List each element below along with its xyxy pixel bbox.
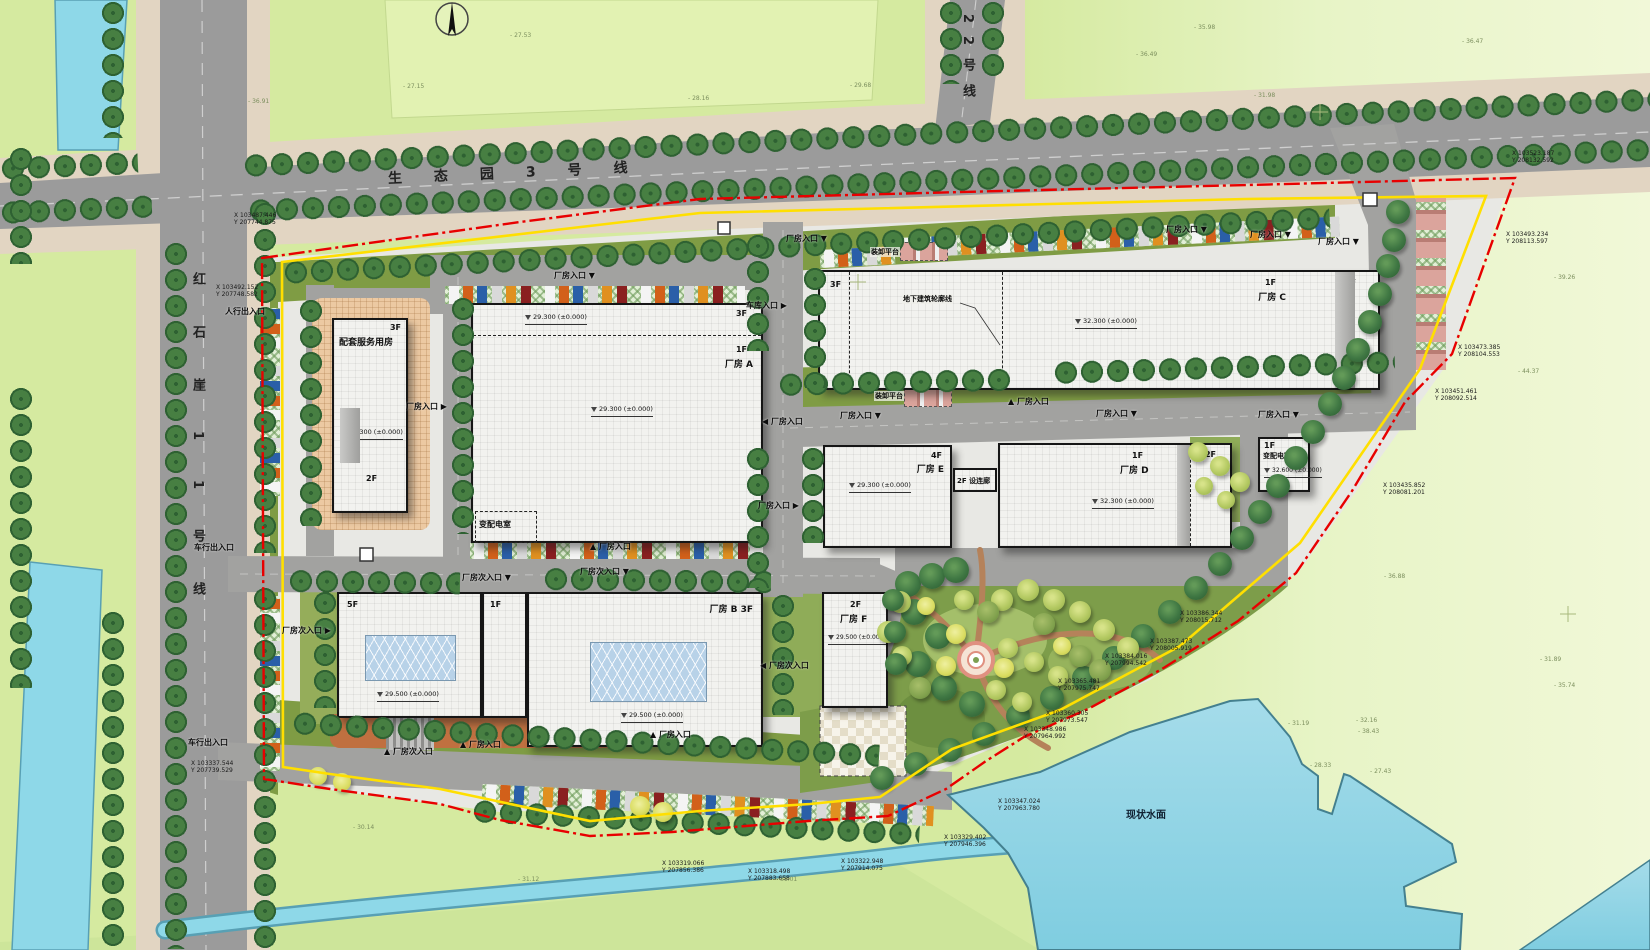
survey-coordinate: X 103493.234 Y 208113.597 — [1506, 231, 1548, 245]
entrance-label: 车库入口 ▶ — [746, 300, 787, 311]
spot-elevation: - 30.14 — [353, 824, 374, 831]
spot-elevation: - 31.19 — [1288, 720, 1309, 727]
survey-coordinate: X 103347.024 Y 207963.780 — [998, 798, 1040, 812]
entrance-label: ▲ 厂房入口 — [1008, 396, 1049, 407]
site-plan: 3F 配套服务用房 29.300 (±0.000) 2F 29.300 (±0.… — [0, 0, 1650, 950]
survey-coordinate: X 103435.852 Y 208081.201 — [1383, 482, 1425, 496]
spot-elevation: - 31.01 — [776, 876, 797, 883]
spot-elevation: - 35.74 — [1554, 682, 1575, 689]
spot-elevation: - 36.88 — [1384, 573, 1405, 580]
road-name-eco3: 生态园3号线 — [388, 156, 660, 188]
survey-coordinate: X 103473.385 Y 208104.553 — [1458, 344, 1500, 358]
survey-coordinate: X 103387.473 Y 208005.919 — [1150, 638, 1192, 652]
annotation-label: 装卸平台 — [870, 247, 900, 257]
entrance-label: 厂房入口 ▶ — [758, 500, 799, 511]
survey-coordinate: X 103487.446 Y 207744.875 — [234, 212, 276, 226]
spot-elevation: - 31.12 — [518, 876, 539, 883]
entrance-label: ▲ 厂房入口 — [650, 729, 691, 740]
entrance-label: ▲ 厂房次入口 — [384, 746, 433, 757]
entrance-label: 厂房次入口 ▼ — [462, 572, 511, 583]
road-name-hongshiya: 红石崖11号线 — [188, 272, 207, 635]
entrance-label: 厂房次入口 ▶ — [282, 625, 331, 636]
spot-elevation: - 27.43 — [1370, 768, 1391, 775]
entrance-label: 厂房入口 ▼ — [554, 270, 595, 281]
entrance-label: 厂房入口 ▼ — [1258, 409, 1299, 420]
survey-coordinate: X 103384.016 Y 207994.542 — [1105, 653, 1147, 667]
entrance-label: 车行出入口 — [188, 737, 228, 748]
entrance-label: 厂房入口 ▼ — [1166, 224, 1207, 235]
annotation-label: 装卸平台 — [874, 391, 904, 401]
spot-elevation: - 36.49 — [1136, 51, 1157, 58]
survey-coordinate: X 103360.305 Y 207973.547 — [1046, 710, 1088, 724]
survey-coordinate: X 103386.344 Y 208015.712 — [1180, 610, 1222, 624]
entrance-label: 车行出入口 — [194, 542, 234, 553]
survey-coordinate: X 103451.461 Y 208092.514 — [1435, 388, 1477, 402]
spot-elevation: - 32.16 — [1356, 717, 1377, 724]
spot-elevation: - 31.98 — [1254, 92, 1275, 99]
survey-coordinate: X 103322.948 Y 207914.075 — [841, 858, 883, 872]
entrance-label: ▲ 厂房入口 — [590, 541, 631, 552]
survey-coordinate: X 103337.544 Y 207739.529 — [191, 760, 233, 774]
entrance-label: ◀ 厂房次入口 — [760, 660, 809, 671]
spot-elevation: - 36.47 — [1462, 38, 1483, 45]
survey-coordinate: X 103523.187 Y 208132.592 — [1512, 150, 1554, 164]
entrance-label: ◀ 厂房入口 — [762, 416, 803, 427]
spot-elevation: - 39.26 — [1554, 274, 1575, 281]
spot-elevation: - 35.98 — [1194, 24, 1215, 31]
road-name-line22: 22号线 — [958, 14, 977, 110]
entrance-label: 厂房入口 ▼ — [1096, 408, 1137, 419]
survey-coordinate: X 103365.481 Y 207975.747 — [1058, 678, 1100, 692]
survey-coordinate: X 103348.986 Y 207964.992 — [1024, 726, 1066, 740]
entrance-label: 厂房入口 ▼ — [840, 410, 881, 421]
entrance-label: 厂房入口 ▶ — [406, 401, 447, 412]
annotation-label: 地下建筑轮廓线 — [902, 294, 953, 304]
spot-elevation: - 28.16 — [688, 95, 709, 102]
entrance-label: 厂房入口 ▼ — [1250, 229, 1291, 240]
survey-coordinate: X 103319.066 Y 207856.386 — [662, 860, 704, 874]
spot-elevation: - 36.91 — [248, 98, 269, 105]
entrance-label: 厂房次入口 ▼ — [580, 566, 629, 577]
spot-elevation: - 44.37 — [1518, 368, 1539, 375]
lake-label: 现状水面 — [1126, 806, 1166, 821]
entrance-label: 厂房入口 ▼ — [1318, 236, 1359, 247]
entrance-label: ▲ 厂房入口 — [460, 739, 501, 750]
survey-coordinate: X 103329.402 Y 207946.396 — [944, 834, 986, 848]
spot-elevation: - 28.33 — [1310, 762, 1331, 769]
spot-elevation: - 27.15 — [403, 83, 424, 90]
spot-elevation: - 29.68 — [850, 82, 871, 89]
entrance-label: 厂房入口 ▼ — [786, 233, 827, 244]
entrance-label: 人行出入口 — [225, 306, 265, 317]
survey-coordinate: X 103492.152 Y 207748.582 — [216, 284, 258, 298]
spot-elevation: - 27.53 — [510, 32, 531, 39]
spot-elevation: - 38.43 — [1358, 728, 1379, 735]
spot-elevation: - 31.89 — [1540, 656, 1561, 663]
